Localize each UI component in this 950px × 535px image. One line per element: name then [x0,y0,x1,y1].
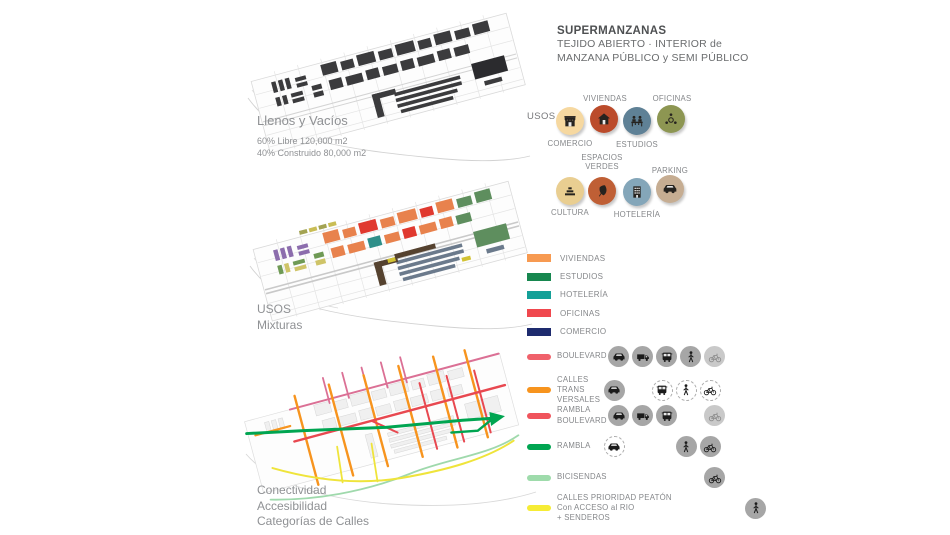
street-row-prioridad-peaton: CALLES PRIORIDAD PEATÓN Con ACCESO al RI… [527,493,792,523]
bicycle-icon [704,405,725,426]
bus-icon [652,380,673,401]
rambla-label: RAMBLA [557,441,602,451]
bus-icon [656,405,677,426]
rambla-boulevard-label-2: BOULEVARD [557,416,607,426]
map1-stat-construido: 40% Construido 80,000 m2 [257,147,366,159]
prioridad-peaton-label-2: Con ACCESO al RIO [557,503,672,513]
pedestrian-icon [745,498,766,519]
uso-circle-estudios [623,107,651,135]
map1-title: Llenos y Vacíos [257,113,366,128]
bicycle-icon [704,467,725,488]
street-row-boulevard: BOULEVARD [527,346,727,367]
calles-transversales-label-2: TRANS [557,385,602,395]
map1-stat-libre: 60% Libre 120,000 m2 [257,135,366,147]
street-row-calles-transversales: CALLES TRANS VERSALES [527,375,722,405]
page-title: SUPERMANZANAS [557,25,787,37]
map3-caption: Conectividad Accesibilidad Categorías de… [257,483,369,530]
usos-section-label: USOS [527,111,556,122]
uso-label-verdes: VERDES [567,162,637,171]
uso-label-espacios: ESPACIOS [567,153,637,162]
estudios-label: ESTUDIOS [560,272,603,281]
viviendas-swatch [527,254,551,262]
supermanzanas-diagram: Llenos y Vacíos 60% Libre 120,000 m2 40%… [0,0,950,535]
uso-label-estudios: ESTUDIOS [602,140,672,149]
uso-circle-cultura [556,177,584,205]
comercio-label: COMERCIO [560,327,606,336]
map1-caption: Llenos y Vacíos 60% Libre 120,000 m2 40%… [257,113,366,159]
pedestrian-icon [680,346,701,367]
car-icon [662,181,678,197]
prioridad-peaton-label-1: CALLES PRIORIDAD PEATÓN [557,493,672,503]
legend-row-viviendas: VIVIENDAS [527,249,608,267]
calles-transversales-label-3: VERSALES [557,395,602,405]
map2-caption: USOS Mixturas [257,302,302,333]
uses-color-legend: VIVIENDAS ESTUDIOS HOTELERÍA OFICINAS CO… [527,249,608,341]
calles-transversales-label-1: CALLES [557,375,602,385]
header: SUPERMANZANAS TEJIDO ABIERTO · INTERIOR … [557,25,787,65]
calles-transversales-swatch [527,387,551,393]
boulevard-label: BOULEVARD [557,351,607,361]
uso-label-parking: PARKING [635,166,705,175]
oficinas-swatch [527,309,551,317]
rambla-swatch [527,444,551,450]
students-icon [629,113,645,129]
street-row-rambla: RAMBLA [527,436,722,457]
prioridad-peaton-swatch [527,505,551,511]
uso-circle-oficinas [657,105,685,133]
legend-row-estudios: ESTUDIOS [527,267,608,285]
rambla-boulevard-label-1: RAMBLA [557,405,607,415]
page-subtitle-1: TEJIDO ABIERTO · INTERIOR de [557,37,787,51]
uso-label-viviendas: VIVIENDAS [570,94,640,103]
hoteleria-label: HOTELERÍA [560,290,608,299]
bicycle-icon [700,436,721,457]
uso-label-oficinas: OFICINAS [637,94,707,103]
bicisendas-label: BICISENDAS [557,472,607,482]
map2-title-line2: Mixturas [257,318,302,334]
legend-row-hoteleria: HOTELERÍA [527,286,608,304]
bus-icon [656,346,677,367]
comercio-swatch [527,328,551,336]
page-subtitle-2: MANZANA PÚBLICO y SEMI PÚBLICO [557,51,787,65]
rambla-boulevard-swatch [527,413,551,419]
boulevard-swatch [527,354,551,360]
map3-title-line1: Conectividad [257,483,369,499]
viviendas-label: VIVIENDAS [560,254,605,263]
uso-circle-espacios-verdes [588,177,616,205]
bicycle-icon [704,346,725,367]
car-icon [604,436,625,457]
map3-title-line2: Accesibilidad [257,499,369,515]
car-icon [608,346,629,367]
car-icon [604,380,625,401]
uso-circle-viviendas [590,105,618,133]
estudios-swatch [527,273,551,281]
uso-circle-parking [656,175,684,203]
bicisendas-swatch [527,475,551,481]
uso-label-hoteleria: HOTELERÍA [602,210,672,219]
pedestrian-icon [676,380,697,401]
bicycle-icon [700,380,721,401]
street-row-rambla-boulevard: RAMBLA BOULEVARD [527,405,727,426]
store-icon [562,113,578,129]
legend-row-oficinas: OFICINAS [527,304,608,322]
truck-icon [632,346,653,367]
map3-title-line3: Categorías de Calles [257,514,369,530]
leaf-icon [594,183,610,199]
pedestrian-icon [676,436,697,457]
street-row-bicisendas: BICISENDAS [527,467,727,488]
oficinas-label: OFICINAS [560,309,600,318]
uso-label-comercio: COMERCIO [535,139,605,148]
legend-row-comercio: COMERCIO [527,323,608,341]
uso-circle-comercio [556,107,584,135]
culture-icon [562,183,578,199]
meeting-icon [663,111,679,127]
car-icon [608,405,629,426]
uso-label-cultura: CULTURA [535,208,605,217]
map2-title-line1: USOS [257,302,302,318]
hoteleria-swatch [527,291,551,299]
truck-icon [632,405,653,426]
uso-circle-hoteleria [623,178,651,206]
prioridad-peaton-label-3: + SENDEROS [557,513,672,523]
home-icon [596,111,612,127]
hotel-icon [629,184,645,200]
